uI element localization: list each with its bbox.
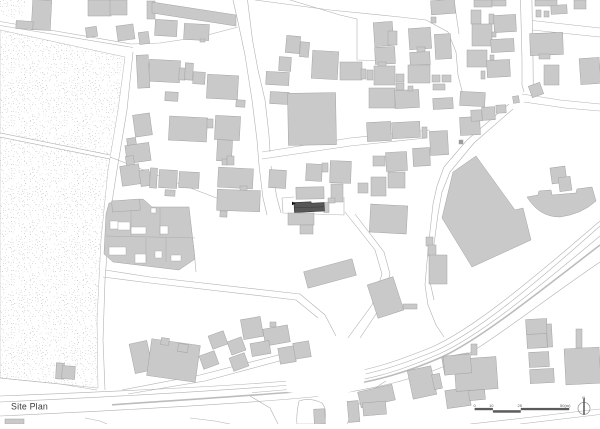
svg-text:N: N: [582, 395, 585, 400]
svg-text:50(m): 50(m): [560, 403, 571, 408]
svg-text:10: 10: [489, 403, 494, 408]
svg-text:Site Plan: Site Plan: [11, 402, 48, 412]
svg-text:25: 25: [518, 403, 523, 408]
